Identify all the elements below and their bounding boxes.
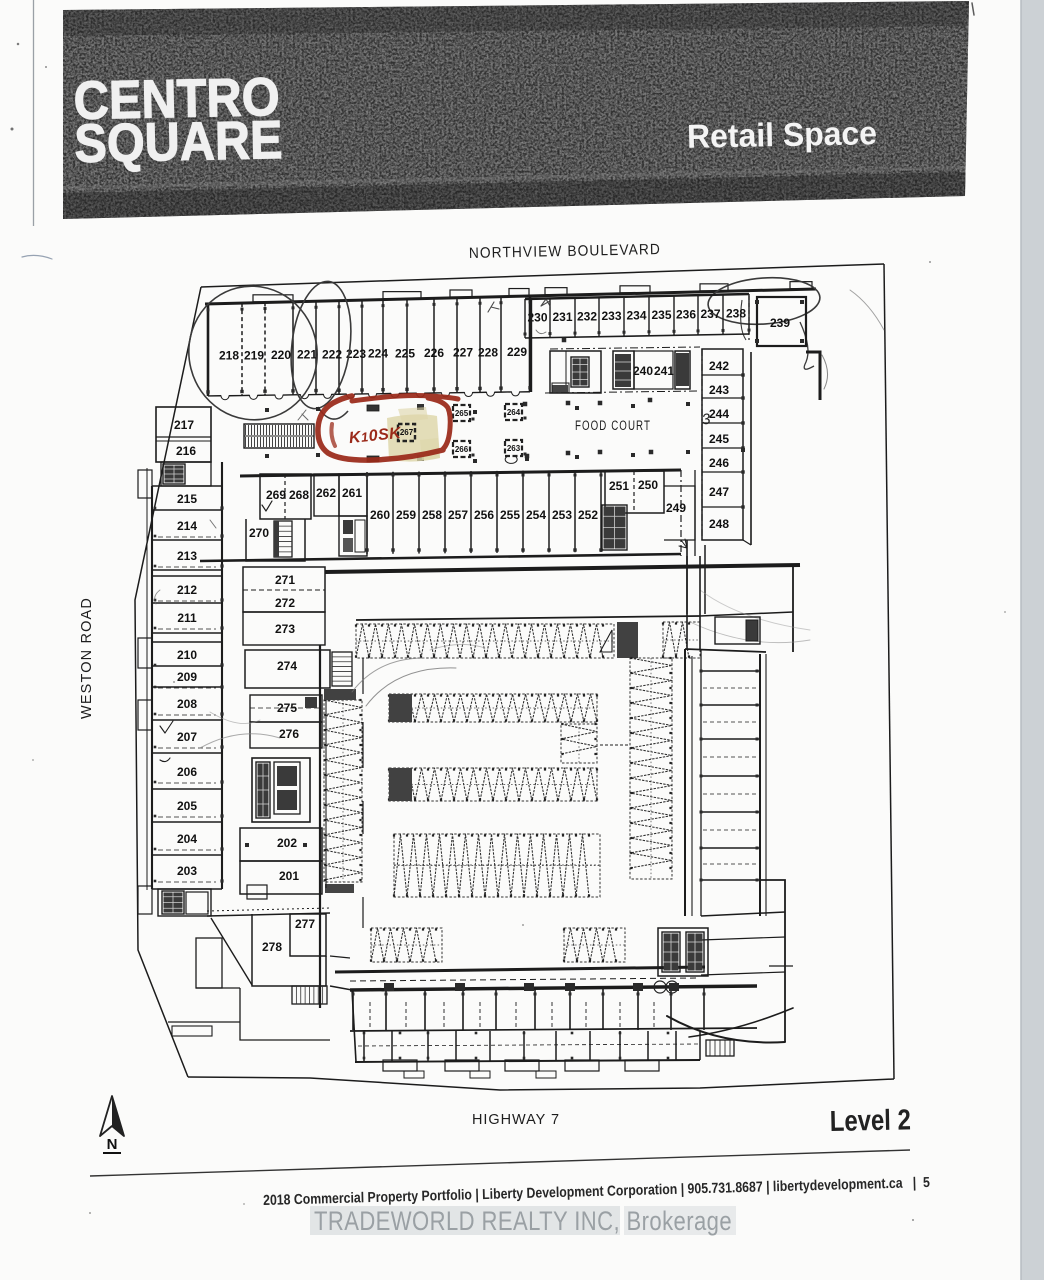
svg-text:241: 241 xyxy=(654,364,674,378)
svg-text:270: 270 xyxy=(249,526,269,540)
svg-text:231: 231 xyxy=(552,310,572,324)
svg-text:Level 2: Level 2 xyxy=(829,1104,911,1138)
svg-text:261: 261 xyxy=(342,486,362,500)
svg-text:226: 226 xyxy=(424,346,444,360)
svg-text:276: 276 xyxy=(279,727,299,741)
svg-text:204: 204 xyxy=(177,832,197,846)
svg-text:WESTON ROAD: WESTON ROAD xyxy=(78,597,95,719)
svg-text:210: 210 xyxy=(177,648,197,662)
svg-text:255: 255 xyxy=(500,508,520,522)
svg-text:265: 265 xyxy=(455,409,469,418)
svg-text:266: 266 xyxy=(455,445,469,454)
svg-text:220: 220 xyxy=(271,348,291,362)
svg-text:273: 273 xyxy=(275,622,295,636)
svg-text:239: 239 xyxy=(770,316,790,330)
svg-text:247: 247 xyxy=(709,485,729,499)
svg-text:218: 218 xyxy=(219,349,239,363)
svg-text:207: 207 xyxy=(177,730,197,744)
svg-text:FOOD COURT: FOOD COURT xyxy=(575,418,651,433)
svg-text:224: 224 xyxy=(368,347,388,361)
svg-text:238: 238 xyxy=(726,306,746,320)
svg-text:268: 268 xyxy=(289,488,309,502)
svg-text:271: 271 xyxy=(275,573,295,587)
svg-text:253: 253 xyxy=(552,508,572,522)
svg-text:225: 225 xyxy=(395,346,415,360)
svg-text:213: 213 xyxy=(177,549,197,563)
svg-text:221: 221 xyxy=(297,348,317,362)
svg-text:234: 234 xyxy=(626,309,646,323)
svg-text:277: 277 xyxy=(295,917,315,931)
svg-text:209: 209 xyxy=(177,670,197,684)
svg-text:278: 278 xyxy=(262,940,282,954)
svg-text:233: 233 xyxy=(601,309,621,323)
svg-text:222: 222 xyxy=(322,347,342,361)
svg-text:Retail Space: Retail Space xyxy=(687,114,878,155)
svg-text:203: 203 xyxy=(177,864,197,878)
svg-text:211: 211 xyxy=(177,611,197,625)
svg-text:235: 235 xyxy=(651,308,671,322)
svg-text:272: 272 xyxy=(275,596,295,610)
svg-text:257: 257 xyxy=(448,508,468,522)
svg-text:232: 232 xyxy=(577,310,597,324)
svg-text:269: 269 xyxy=(266,488,286,502)
svg-text:249: 249 xyxy=(666,501,686,515)
svg-text:TRADEWORLD REALTY INC, Brokera: TRADEWORLD REALTY INC, Brokerage xyxy=(314,1206,732,1236)
svg-text:237: 237 xyxy=(700,307,720,321)
svg-text:217: 217 xyxy=(174,418,194,432)
svg-text:SQUARE: SQUARE xyxy=(74,110,283,174)
svg-text:246: 246 xyxy=(709,456,729,470)
svg-text:250: 250 xyxy=(638,478,658,492)
svg-text:264: 264 xyxy=(507,408,521,417)
svg-text:244: 244 xyxy=(709,407,729,421)
svg-text:252: 252 xyxy=(578,508,598,522)
svg-text:262: 262 xyxy=(316,486,336,500)
svg-text:208: 208 xyxy=(177,697,197,711)
svg-text:227: 227 xyxy=(453,346,473,360)
svg-text:212: 212 xyxy=(177,583,197,597)
svg-text:251: 251 xyxy=(609,479,629,493)
svg-text:205: 205 xyxy=(177,799,197,813)
svg-text:242: 242 xyxy=(709,359,729,373)
svg-text:243: 243 xyxy=(709,383,729,397)
svg-text:274: 274 xyxy=(277,659,297,673)
svg-text:267: 267 xyxy=(400,428,414,437)
svg-text:256: 256 xyxy=(474,508,494,522)
svg-text:236: 236 xyxy=(676,307,696,321)
svg-text:260: 260 xyxy=(370,508,390,522)
svg-text:206: 206 xyxy=(177,765,197,779)
svg-text:245: 245 xyxy=(709,432,729,446)
svg-text:254: 254 xyxy=(526,508,546,522)
svg-text:258: 258 xyxy=(422,508,442,522)
svg-text:202: 202 xyxy=(277,836,297,850)
svg-text:263: 263 xyxy=(507,444,521,453)
svg-text:HIGHWAY 7: HIGHWAY 7 xyxy=(472,1111,560,1128)
svg-text:240: 240 xyxy=(633,364,653,378)
svg-text:201: 201 xyxy=(279,869,299,883)
svg-text:219: 219 xyxy=(244,348,264,362)
svg-text:216: 216 xyxy=(176,444,196,458)
svg-text:214: 214 xyxy=(177,519,197,533)
svg-text:N: N xyxy=(107,1136,118,1153)
svg-text:259: 259 xyxy=(396,508,416,522)
svg-text:229: 229 xyxy=(507,345,527,359)
svg-text:215: 215 xyxy=(177,492,197,506)
svg-text:248: 248 xyxy=(709,517,729,531)
svg-text:228: 228 xyxy=(478,345,498,359)
